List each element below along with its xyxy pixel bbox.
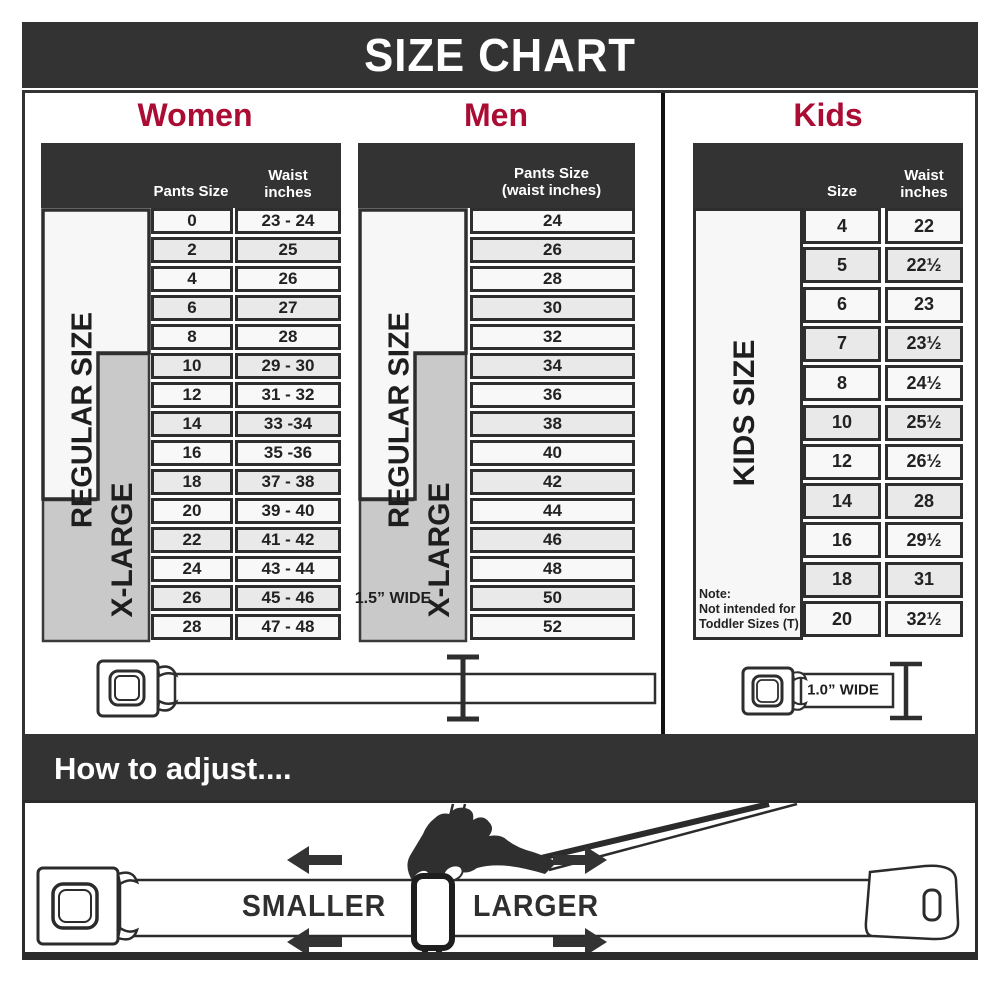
table-cell: 34 xyxy=(470,353,635,379)
women-pants-size-header: Pants Size xyxy=(149,183,233,200)
table-cell: 26 xyxy=(470,237,635,263)
table-cell: 32 xyxy=(470,324,635,350)
table-cell: 38 xyxy=(470,411,635,437)
table-cell: 26 xyxy=(151,585,233,611)
table-cell: 47 - 48 xyxy=(235,614,341,640)
table-cell: 40 xyxy=(470,440,635,466)
table-cell: 42 xyxy=(470,469,635,495)
table-cell: 8 xyxy=(803,365,881,401)
table-cell: 16 xyxy=(803,522,881,558)
table-cell: 23 xyxy=(885,287,963,323)
men-heading: Men xyxy=(464,97,528,134)
table-cell: 43 - 44 xyxy=(235,556,341,582)
table-cell: 31 xyxy=(885,562,963,598)
kids-size-label: KIDS SIZE xyxy=(728,340,762,487)
table-cell: 14 xyxy=(803,483,881,519)
women-heading: Women xyxy=(138,97,253,134)
table-cell: 39 - 40 xyxy=(235,498,341,524)
men-table: Pants Size (waist inches) REGULAR SIZE X… xyxy=(358,143,635,643)
table-cell: 20 xyxy=(803,601,881,637)
table-cell: 6 xyxy=(151,295,233,321)
women-regular-size-label: REGULAR SIZE xyxy=(67,312,100,528)
table-cell: 28 xyxy=(151,614,233,640)
table-cell: 41 - 42 xyxy=(235,527,341,553)
table-cell: 16 xyxy=(151,440,233,466)
kids-table: Size Waist inches Note: Not intended for… xyxy=(693,143,963,640)
smaller-label: SMALLER xyxy=(242,888,386,924)
table-cell: 36 xyxy=(470,382,635,408)
men-pants-size-header: Pants Size (waist inches) xyxy=(468,165,635,199)
how-to-adjust-title: How to adjust.... xyxy=(54,751,292,787)
table-cell: 23½ xyxy=(885,326,963,362)
size-tables-panel: Women Men Kids Pants Size Waist inches R… xyxy=(22,90,978,737)
table-cell: 52 xyxy=(470,614,635,640)
table-cell: 22 xyxy=(885,208,963,244)
table-cell: 26 xyxy=(235,266,341,292)
table-cell: 23 - 24 xyxy=(235,208,341,234)
table-cell: 28 xyxy=(235,324,341,350)
adult-belt-graphic xyxy=(85,648,675,728)
table-cell: 29 - 30 xyxy=(235,353,341,379)
kids-belt-width-label: 1.0” WIDE xyxy=(807,682,879,699)
table-cell: 14 xyxy=(151,411,233,437)
table-cell: 7 xyxy=(803,326,881,362)
adjust-illustration-box: SMALLER LARGER xyxy=(22,800,978,960)
table-cell: 30 xyxy=(470,295,635,321)
table-cell: 2 xyxy=(151,237,233,263)
kids-waist-header: Waist inches xyxy=(885,167,963,201)
table-cell: 25 xyxy=(235,237,341,263)
table-cell: 29½ xyxy=(885,522,963,558)
table-cell: 20 xyxy=(151,498,233,524)
table-cell: 27 xyxy=(235,295,341,321)
table-cell: 24 xyxy=(151,556,233,582)
table-cell: 31 - 32 xyxy=(235,382,341,408)
table-cell: 45 - 46 xyxy=(235,585,341,611)
table-cell: 0 xyxy=(151,208,233,234)
table-cell: 4 xyxy=(151,266,233,292)
size-chart-page: SIZE CHART Women Men Kids Pants Size Wai… xyxy=(0,0,1000,1000)
table-cell: 48 xyxy=(470,556,635,582)
table-cell: 10 xyxy=(151,353,233,379)
kids-note: Note: Not intended for Toddler Sizes (T) xyxy=(699,587,799,632)
table-cell: 28 xyxy=(470,266,635,292)
table-cell: 8 xyxy=(151,324,233,350)
women-xlarge-label: X-LARGE xyxy=(106,483,140,618)
kids-size-header: Size xyxy=(803,183,881,200)
table-cell: 24½ xyxy=(885,365,963,401)
table-cell: 33 -34 xyxy=(235,411,341,437)
adjust-belt-graphic xyxy=(25,803,975,952)
table-cell: 26½ xyxy=(885,444,963,480)
table-cell: 46 xyxy=(470,527,635,553)
panel-divider xyxy=(661,93,665,734)
table-cell: 22 xyxy=(151,527,233,553)
women-waist-header: Waist inches xyxy=(235,167,341,201)
table-cell: 6 xyxy=(803,287,881,323)
table-cell: 4 xyxy=(803,208,881,244)
adult-belt-width-label: 1.5” WIDE xyxy=(355,590,431,608)
how-to-adjust-band: How to adjust.... xyxy=(22,737,978,800)
table-cell: 5 xyxy=(803,247,881,283)
table-cell: 28 xyxy=(885,483,963,519)
men-regular-size-label: REGULAR SIZE xyxy=(384,312,417,528)
table-cell: 18 xyxy=(151,469,233,495)
title-band: SIZE CHART xyxy=(22,22,978,88)
table-cell: 50 xyxy=(470,585,635,611)
table-cell: 12 xyxy=(151,382,233,408)
table-cell: 12 xyxy=(803,444,881,480)
table-cell: 24 xyxy=(470,208,635,234)
larger-label: LARGER xyxy=(473,888,599,924)
kids-heading: Kids xyxy=(793,97,862,134)
table-cell: 10 xyxy=(803,405,881,441)
table-cell: 37 - 38 xyxy=(235,469,341,495)
women-table: Pants Size Waist inches REGULAR SIZE X-L… xyxy=(41,143,341,643)
table-cell: 35 -36 xyxy=(235,440,341,466)
page-title: SIZE CHART xyxy=(364,28,636,82)
table-cell: 44 xyxy=(470,498,635,524)
table-cell: 18 xyxy=(803,562,881,598)
table-cell: 32½ xyxy=(885,601,963,637)
table-cell: 22½ xyxy=(885,247,963,283)
table-cell: 25½ xyxy=(885,405,963,441)
